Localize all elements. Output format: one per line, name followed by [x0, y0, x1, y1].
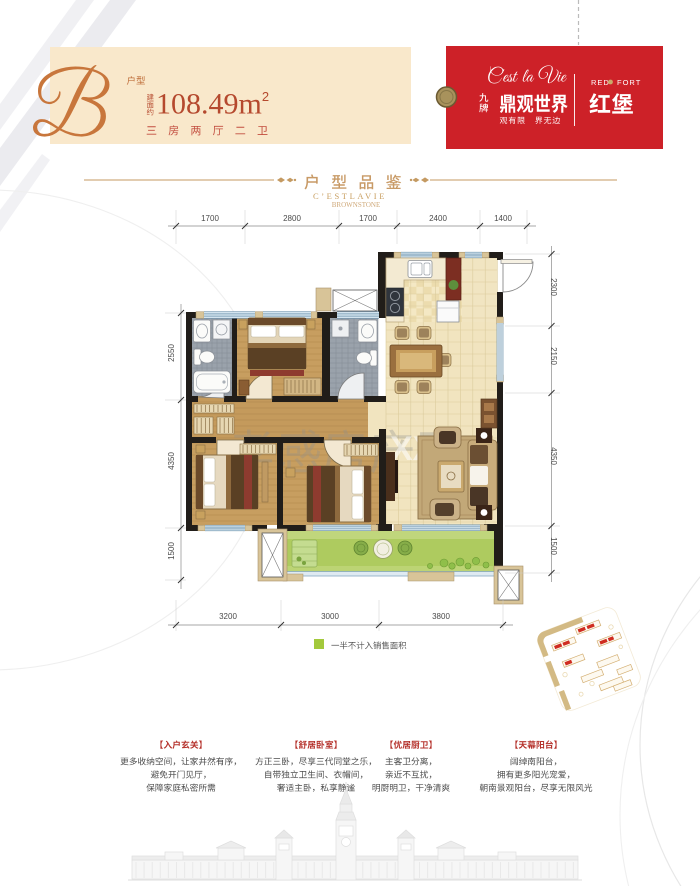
svg-text:2550: 2550	[167, 344, 176, 362]
svg-text:1700: 1700	[359, 214, 377, 223]
svg-text:1500: 1500	[167, 542, 176, 560]
svg-text:2150: 2150	[549, 347, 558, 365]
svg-text:3200: 3200	[219, 612, 237, 621]
svg-text:C’ESTLAVIE: C’ESTLAVIE	[313, 191, 387, 201]
svg-text:FORT: FORT	[617, 78, 641, 87]
svg-text:1400: 1400	[494, 214, 512, 223]
svg-text:108.49m2: 108.49m2	[156, 88, 269, 121]
svg-text:1700: 1700	[201, 214, 219, 223]
svg-text:3800: 3800	[432, 612, 450, 621]
svg-text:BROWNSTONE: BROWNSTONE	[332, 201, 381, 209]
svg-text:3000: 3000	[321, 612, 339, 621]
svg-text:1500: 1500	[549, 537, 558, 555]
svg-text:4350: 4350	[549, 447, 558, 465]
svg-text:4350: 4350	[167, 452, 176, 470]
svg-text:RED: RED	[591, 78, 610, 87]
svg-text:2800: 2800	[283, 214, 301, 223]
svg-text:2400: 2400	[429, 214, 447, 223]
svg-text:2300: 2300	[549, 278, 558, 296]
